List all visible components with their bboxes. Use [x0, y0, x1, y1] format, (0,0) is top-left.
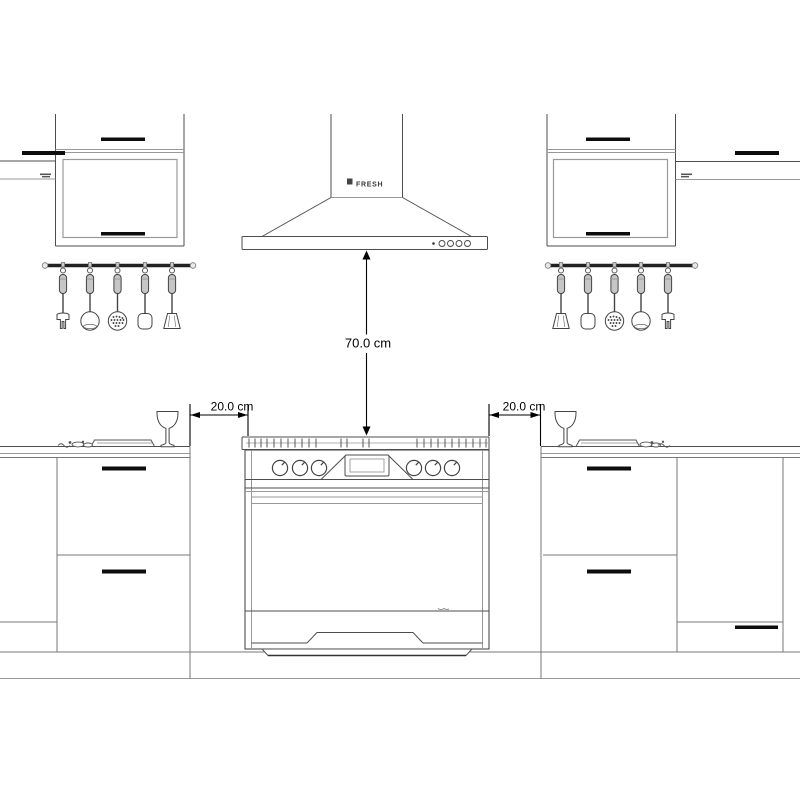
hood-canopy-right [403, 198, 472, 237]
utensil-ladle [632, 263, 650, 331]
utensil-turner [164, 263, 180, 329]
range-plinth [262, 649, 472, 656]
utensil-skimmer [108, 263, 126, 331]
cabinet-handle [22, 151, 65, 155]
oven-display-screen [350, 459, 384, 472]
utensil-fork [662, 263, 674, 329]
rail-end-cap [545, 263, 551, 269]
cabinet-handle [586, 232, 630, 236]
cabinet-handle [101, 138, 145, 142]
drawing-canvas: FRESH [0, 0, 800, 800]
left-counter-items [58, 412, 178, 448]
cooktop-burner-grates [242, 437, 489, 450]
hood-brand-logo: FRESH [347, 179, 383, 189]
arrow-down-icon [363, 427, 371, 436]
dimension-label: 20.0 cm [211, 400, 254, 414]
left-utensil-rail [42, 263, 196, 331]
cabinet-door-frame [63, 160, 177, 238]
utensil-skimmer [605, 263, 623, 331]
right-utensil-rail [545, 263, 698, 331]
left-wall-cabinet [56, 114, 185, 246]
drawer-handle [587, 467, 631, 471]
hood-brand-text: FRESH [356, 182, 383, 189]
brand-glyph-icon [347, 179, 353, 185]
utensil-spatula [581, 263, 595, 330]
utensil-spatula [138, 263, 152, 330]
stove-knob [272, 460, 287, 475]
drawer-handle [735, 626, 778, 630]
stove-knob [311, 460, 326, 475]
cabinet-handle [735, 151, 779, 155]
stove-knob [292, 460, 307, 475]
dimension-hood-clearance: 70.0 cm [345, 251, 391, 436]
utensil-fork [57, 263, 69, 329]
right-side-shelf [676, 151, 800, 180]
stove-knob [406, 460, 421, 475]
right-base-cabinet [543, 458, 783, 653]
left-counter [0, 447, 190, 679]
dimension-right-gap: 20.0 cm [489, 400, 545, 447]
drawer-handle [102, 570, 146, 574]
arrow-up-icon [363, 251, 371, 260]
cabinet-handle [101, 232, 145, 236]
stove-knob [444, 460, 459, 475]
rail-end-cap [190, 263, 196, 269]
drawer-handle [102, 467, 146, 471]
arrow-left-icon [191, 412, 201, 418]
dimension-label: 70.0 cm [345, 336, 391, 351]
cabinet-door-frame [554, 160, 668, 238]
cabinet-handle [586, 138, 630, 142]
hood-canopy-left [262, 198, 331, 237]
shelf-logo-mark [40, 174, 51, 178]
kitchen-elevation-drawing: FRESH [0, 0, 800, 800]
rail-end-cap [692, 263, 698, 269]
right-wall-cabinet [547, 114, 676, 246]
rail-end-cap [42, 263, 48, 269]
dimension-label: 20.0 cm [503, 400, 546, 414]
range-hood: FRESH [242, 114, 488, 250]
left-base-cabinet [0, 458, 190, 653]
right-counter-items [555, 412, 670, 448]
gas-range [242, 437, 489, 656]
utensil-turner [553, 263, 569, 329]
wine-glass [555, 412, 576, 447]
dimension-left-gap: 20.0 cm [190, 400, 253, 447]
wine-glass [157, 412, 178, 447]
utensil-ladle [81, 263, 99, 331]
shelf-logo-mark [681, 174, 692, 178]
drawer-handle [587, 570, 631, 574]
right-counter [541, 447, 800, 679]
stove-knob [425, 460, 440, 475]
arrow-left-icon [490, 412, 500, 418]
